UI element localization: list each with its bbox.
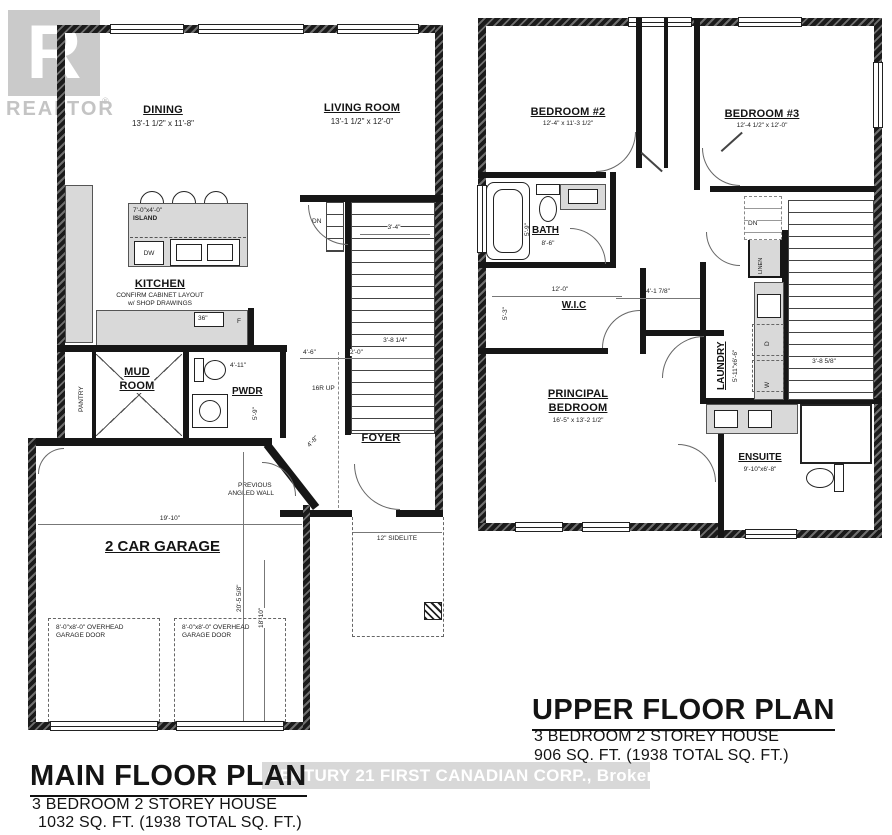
garage-width-dimline bbox=[38, 524, 302, 525]
living-room-label: LIVING ROOM bbox=[324, 102, 400, 115]
bedroom2-bath-wall bbox=[478, 172, 606, 178]
wic-door-arc bbox=[602, 310, 640, 348]
main-right-wall bbox=[435, 25, 443, 517]
main-floor-subtitle-1: 3 BEDROOM 2 STOREY HOUSE bbox=[32, 796, 277, 814]
floorplan-canvas: R REALTOR ® DINING 13'-1 1/2" x 11'-8" L… bbox=[0, 0, 892, 835]
porch-post bbox=[424, 602, 442, 620]
bedroom2-dims: 12'-4" x 11'-3 1/2" bbox=[543, 120, 593, 127]
stair-winders bbox=[744, 196, 782, 240]
garage-door-right-label-1: 8'-0"x8'-0" OVERHEAD bbox=[182, 624, 249, 631]
pwdr-hall-wall bbox=[280, 345, 286, 438]
garage-door-left-label-1: 8'-0"x8'-0" OVERHEAD bbox=[56, 624, 123, 631]
wic-label: W.I.C bbox=[562, 300, 586, 312]
hall-dim-upper: 4'-1 7/8" bbox=[646, 288, 670, 295]
living-room-dims: 13'-1 1/2" x 12'-0" bbox=[331, 117, 394, 126]
garage-label: 2 CAR GARAGE bbox=[105, 538, 220, 555]
upper-left-wall bbox=[478, 18, 486, 531]
upper-floor-subtitle-2: 906 SQ. FT. (1938 TOTAL SQ. FT.) bbox=[534, 747, 789, 765]
laundry-label: LAUNDRY bbox=[716, 341, 728, 390]
bathtub-inner bbox=[493, 189, 523, 253]
kitchen-note2: w/ SHOP DRAWINGS bbox=[128, 300, 192, 307]
island-dash-line bbox=[130, 237, 246, 238]
linen-label: LINEN bbox=[758, 258, 764, 274]
stairs-up-label: 16R UP bbox=[312, 385, 335, 392]
bath-dim-height: 5'-9" bbox=[524, 223, 531, 236]
ensuite-sink-left bbox=[714, 410, 738, 428]
closet-left-wall bbox=[636, 18, 642, 168]
upper-stair-dim: 3'-8 5/8" bbox=[812, 358, 836, 365]
fridge-label: F bbox=[237, 318, 241, 325]
garage-depth1-dim: 20'-5 5/8" bbox=[236, 585, 243, 612]
closet-right-wall bbox=[694, 18, 700, 190]
stair-dim-line-top bbox=[360, 234, 430, 235]
bedroom3-label: BEDROOM #3 bbox=[725, 108, 800, 121]
principal-label-2: BEDROOM bbox=[549, 402, 608, 415]
ensuite-label: ENSUITE bbox=[738, 452, 781, 464]
garage-left-wall bbox=[28, 438, 36, 730]
mudroom-label-1: MUD bbox=[124, 366, 150, 379]
front-door-arc bbox=[354, 464, 400, 510]
kitchen-counter-bottom bbox=[96, 310, 248, 346]
laundry-sink bbox=[757, 294, 781, 318]
hall-dim-1: 4'-6" bbox=[303, 349, 316, 356]
hall-dim-line bbox=[300, 358, 435, 359]
bedroom3-window bbox=[873, 62, 883, 128]
island-label: ISLAND bbox=[133, 215, 157, 222]
kitchen-counter-left bbox=[65, 185, 93, 343]
ensuite-toilet-tank bbox=[834, 464, 844, 492]
principal-dims: 16'-5" x 13'-2 1/2" bbox=[553, 417, 604, 424]
main-left-wall bbox=[57, 25, 65, 446]
ensuite-sink-right bbox=[748, 410, 772, 428]
dining-window bbox=[110, 24, 184, 34]
island-dims: 7'-0"x4'-0" bbox=[133, 207, 162, 214]
kitchen-label: KITCHEN bbox=[135, 278, 185, 291]
wic-dim-height: 5'-3" bbox=[502, 307, 509, 320]
garage-corner-arc bbox=[38, 448, 64, 474]
main-floor-subtitle-2: 1032 SQ. FT. (1938 TOTAL SQ. FT.) bbox=[38, 814, 302, 832]
bath-toilet-tank bbox=[536, 184, 560, 195]
bath-door-arc bbox=[570, 228, 606, 264]
washer-label: W bbox=[764, 382, 771, 388]
pwdr-dim-height: 5'-9" bbox=[252, 407, 259, 420]
upper-dn-label: DN bbox=[748, 220, 757, 227]
hall-principal-wall bbox=[646, 330, 724, 336]
hall-door-arc bbox=[308, 205, 348, 245]
pwdr-sink bbox=[199, 400, 221, 422]
bedroom3-door-arc bbox=[702, 148, 740, 186]
wic-right-wall bbox=[640, 268, 646, 354]
range-label: 36" bbox=[198, 315, 208, 322]
upper-floor-title: UPPER FLOOR PLAN bbox=[532, 694, 835, 731]
ensuite-toilet-bowl bbox=[806, 468, 834, 488]
garage-door-right-opening bbox=[176, 721, 284, 731]
ensuite-window bbox=[745, 529, 797, 539]
closet-mid-wall bbox=[664, 18, 668, 168]
laundry-door-arc bbox=[706, 232, 740, 266]
kitchen-note1: CONFIRM CABINET LAYOUT bbox=[116, 292, 204, 299]
hall-dash-line bbox=[338, 352, 339, 508]
dryer-label: D bbox=[764, 341, 771, 346]
upper-top-window-2 bbox=[738, 17, 802, 27]
pwdr-toilet-tank bbox=[194, 358, 204, 382]
dining-dims: 13'-1 1/2" x 11'-8" bbox=[132, 119, 194, 128]
upper-staircase bbox=[788, 200, 874, 400]
principal-door-arc bbox=[662, 336, 704, 378]
kitchen-hall-wall bbox=[248, 308, 254, 352]
dining-label: DINING bbox=[143, 104, 183, 117]
front-wall-left bbox=[280, 510, 352, 517]
mudroom-label-2: ROOM bbox=[119, 380, 154, 393]
ensuite-dims: 9'-10"x6'-8" bbox=[744, 466, 777, 473]
pwdr-label: PWDR bbox=[232, 386, 263, 398]
main-staircase bbox=[351, 202, 435, 434]
dryer-box bbox=[752, 324, 784, 356]
garage-right-wall bbox=[303, 505, 310, 730]
brokerage-watermark: CENTURY 21 FIRST CANADIAN CORP., Brokera… bbox=[262, 762, 650, 789]
garage-top-wall bbox=[35, 438, 272, 446]
hall-dim-line-upper bbox=[616, 298, 700, 299]
bath-toilet-bowl bbox=[539, 196, 557, 222]
pwdr-toilet-bowl bbox=[204, 360, 226, 380]
principal-window-2 bbox=[582, 522, 630, 532]
laundry-dims: 5'-11"x6'-6" bbox=[732, 350, 739, 382]
principal-label-1: PRINCIPAL bbox=[548, 388, 608, 401]
bath-dim-width: 8'-6" bbox=[542, 240, 555, 247]
dishwasher-label: DW bbox=[144, 250, 155, 257]
garage-mandoor-arc bbox=[262, 462, 296, 496]
realtor-logo-icon: R bbox=[8, 10, 100, 96]
hall-dim-2: 2'-0" bbox=[350, 349, 363, 356]
upper-floor-subtitle-1: 3 BEDROOM 2 STOREY HOUSE bbox=[534, 728, 779, 746]
foyer-label: FOYER bbox=[362, 432, 401, 445]
pwdr-dim-width: 4'-11" bbox=[230, 362, 246, 369]
stair-top-wall bbox=[300, 195, 443, 202]
bath-label: BATH bbox=[532, 225, 559, 237]
mud-pwdr-wall bbox=[183, 352, 189, 438]
bath-sink bbox=[568, 189, 598, 204]
garage-door-right-label-2: GARAGE DOOR bbox=[182, 632, 231, 639]
sink-basin-left bbox=[176, 244, 202, 261]
wic-principal-wall bbox=[478, 348, 608, 354]
bedroom3-dims: 12'-4 1/2" x 12'-0" bbox=[737, 122, 788, 129]
foyer-diag-dim: 4'-8" bbox=[306, 435, 320, 450]
wic-dim-width: 12'-0" bbox=[552, 286, 569, 293]
kitchen-window bbox=[198, 24, 304, 34]
linen-closet bbox=[748, 238, 782, 278]
registered-mark: ® bbox=[102, 96, 109, 106]
bedroom3-hall-wall bbox=[710, 186, 876, 192]
stair-dim-bottom: 3'-8 1/4" bbox=[383, 337, 407, 344]
wic-dim-line bbox=[492, 296, 622, 297]
principal-window-1 bbox=[515, 522, 563, 532]
garage-door-left-label-2: GARAGE DOOR bbox=[56, 632, 105, 639]
dishwasher: DW bbox=[134, 241, 164, 265]
garage-door-left-opening bbox=[50, 721, 158, 731]
shower bbox=[800, 404, 872, 464]
pantry-label: PANTRY bbox=[78, 386, 85, 412]
living-window bbox=[337, 24, 419, 34]
stair-dim-top: 3'-4" bbox=[388, 224, 401, 231]
front-wall-right bbox=[396, 510, 443, 517]
bath-hall-wall bbox=[610, 172, 616, 268]
laundry-left-wall bbox=[700, 262, 706, 402]
ensuite-door-arc bbox=[678, 444, 716, 482]
garage-width-dim: 19'-10" bbox=[160, 515, 180, 522]
sink-basin-right bbox=[207, 244, 233, 261]
main-floor-title: MAIN FLOOR PLAN bbox=[30, 760, 307, 797]
bedroom2-door-arc bbox=[596, 132, 636, 172]
closet-door-leaf bbox=[641, 152, 663, 172]
bedroom2-label: BEDROOM #2 bbox=[531, 106, 606, 119]
